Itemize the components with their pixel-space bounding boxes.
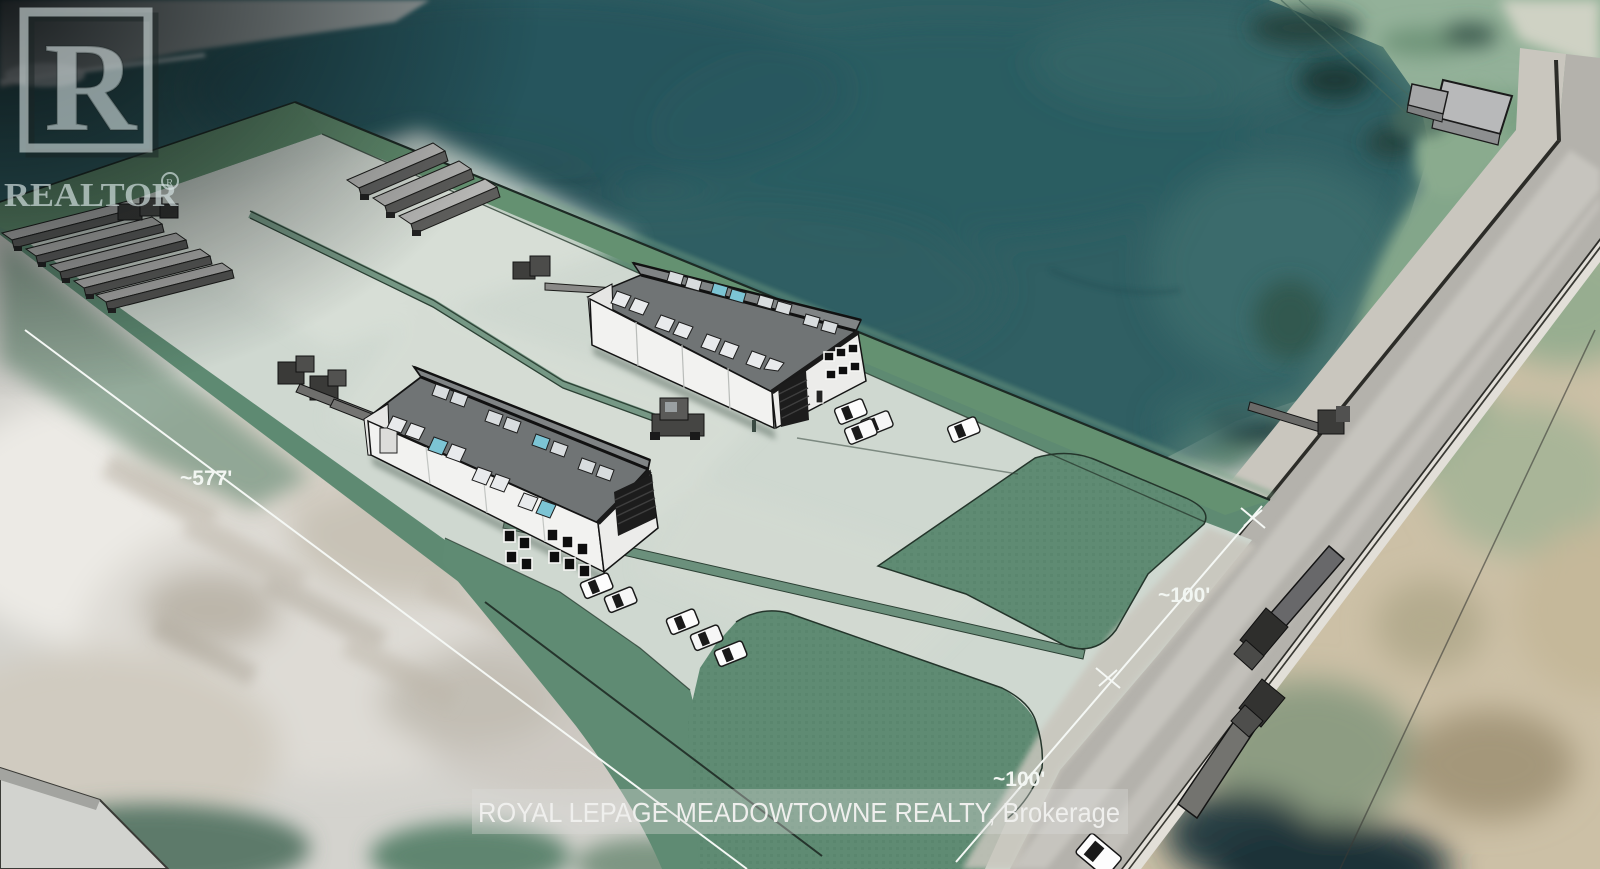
svg-text:REALTOR: REALTOR bbox=[4, 177, 178, 214]
svg-text:~577': ~577' bbox=[180, 467, 232, 490]
svg-text:R: R bbox=[166, 177, 174, 189]
svg-text:ROYAL LEPAGE MEADOWTOWNE REALT: ROYAL LEPAGE MEADOWTOWNE REALTY, Brokera… bbox=[478, 797, 1120, 828]
svg-text:~100': ~100' bbox=[993, 768, 1045, 791]
svg-text:~100': ~100' bbox=[1158, 584, 1210, 607]
svg-text:R: R bbox=[44, 16, 138, 158]
